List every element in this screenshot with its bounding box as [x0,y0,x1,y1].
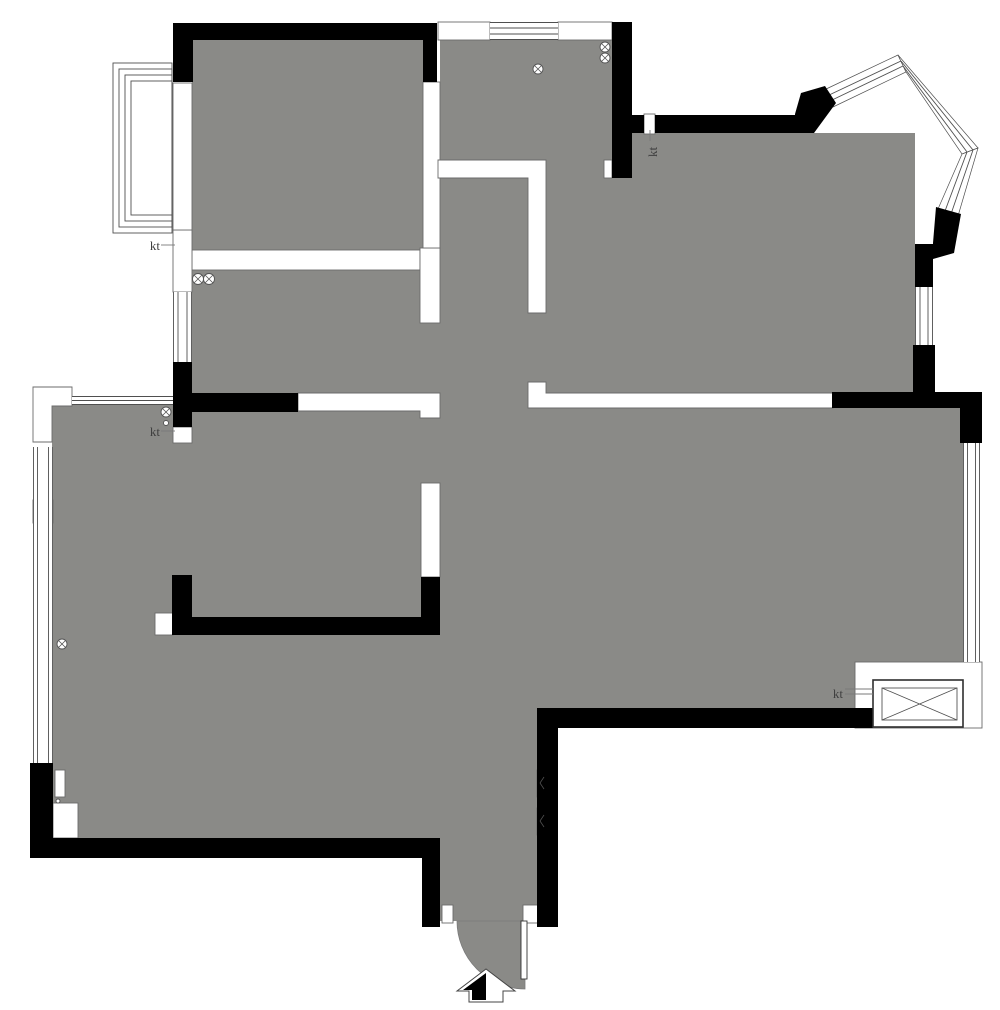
wall [537,708,873,728]
balcony-frame [131,81,172,215]
light-wall [558,22,612,40]
wall [173,40,193,82]
light-wall [604,160,612,178]
floor-area [632,133,915,394]
wall [832,392,982,408]
wall [933,207,961,259]
light-wall [173,230,192,292]
light-wall [644,114,655,134]
kt-label: kt [833,686,844,701]
wall [960,408,982,443]
balcony-frame [119,69,172,227]
kt-label: kt [150,238,161,253]
wall [655,115,800,133]
light-wall [173,83,192,230]
light-wall [420,248,440,323]
balcony-frame [113,63,172,233]
light-wall [155,613,173,635]
wall [30,838,440,858]
wall [915,244,933,287]
kt-label: kt [645,147,660,158]
light-wall [421,483,440,577]
wall [913,345,935,392]
wall [423,40,437,82]
wall [173,23,437,40]
light-wall [55,770,65,797]
circle-symbol [164,421,169,426]
light-wall [442,905,453,923]
window [173,292,192,362]
light-wall [523,905,538,923]
floor-area [192,250,423,394]
circle-symbol [56,799,60,803]
kt-label: kt [150,424,161,439]
light-wall [192,250,420,270]
window [915,287,933,345]
floor-plan-drawing: ktktktkt [0,0,1000,1010]
wall [612,22,632,178]
floor-area [440,392,537,921]
wall [537,708,558,927]
light-wall [438,22,490,40]
light-wall [423,82,440,248]
floor-plan: ktktktkt [0,0,1000,1010]
window [490,22,558,40]
bay-window-band [824,55,906,107]
bay-window-band [938,148,978,216]
floor-area [192,40,423,250]
light-wall [173,427,192,443]
window [963,443,980,662]
wall [632,115,644,133]
wall [422,858,440,927]
door-leaf [521,921,527,979]
floor-area [546,160,632,394]
balcony-frame [125,75,172,221]
light-wall [53,803,78,838]
floor-area [440,40,612,160]
window [33,447,53,763]
